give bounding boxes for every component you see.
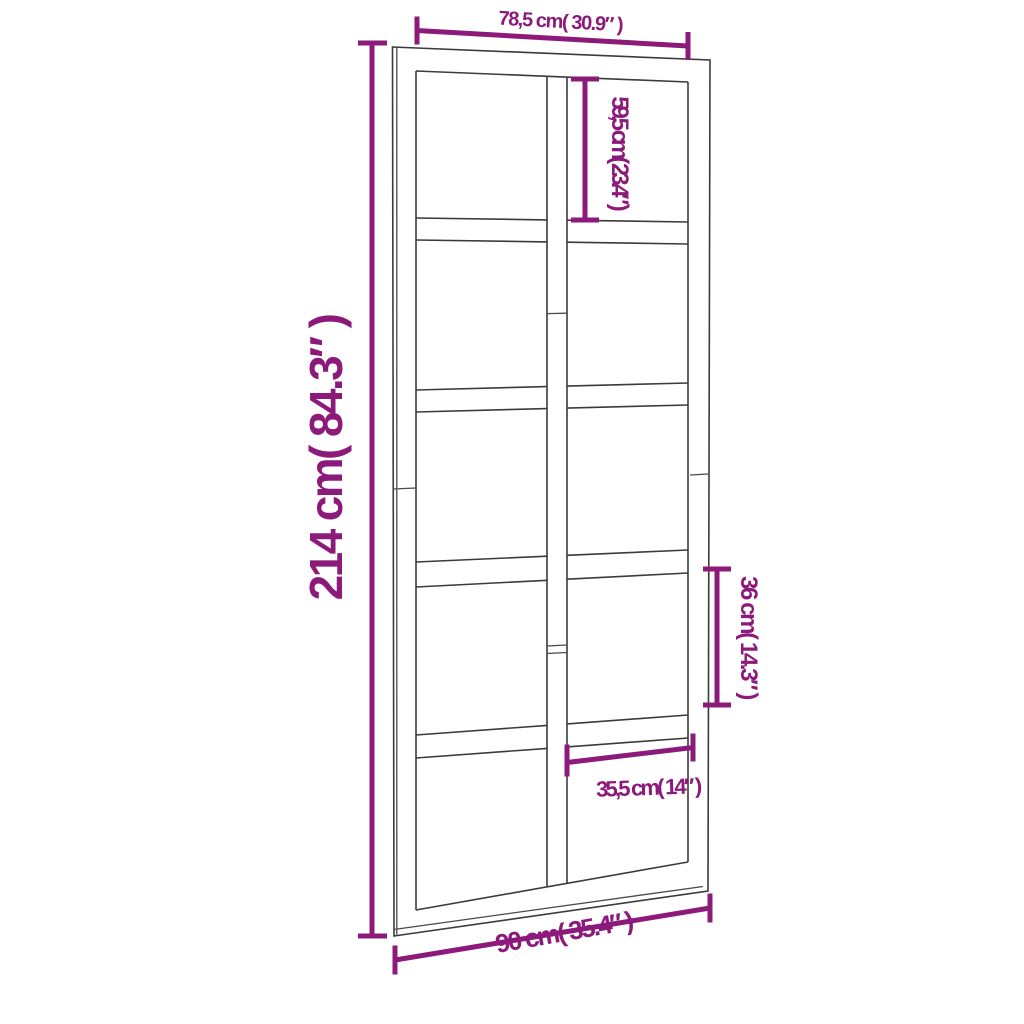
product-dimension-image: 78,5 cm( 30.9″ ) 59,5 cm( 23.4″ ) 214 cm…: [0, 0, 1024, 1024]
dimension-label-right-pane-height: 36 cm( 14.3″ ): [735, 576, 762, 699]
stile-joint-marks: [393, 313, 708, 653]
dimension-top-inner-width: 78,5 cm( 30.9″ ): [417, 8, 688, 60]
dimension-line-bottom-pane-width: [567, 734, 693, 777]
dimension-line-right-pane-height: [703, 569, 731, 705]
dimension-upper-pane-height: 59,5 cm( 23.4″ ): [571, 79, 633, 220]
dimension-label-upper-pane-height: 59,5 cm( 23.4″ ): [606, 96, 633, 211]
dimension-line-upper-pane-height: [571, 79, 599, 220]
window-grid-rails-left: [416, 218, 547, 758]
dimension-label-bottom-pane-width: 35,5 cm( 14″ ): [596, 773, 703, 802]
door-outline: [393, 47, 711, 936]
door-edge-thickness-lines: [394, 47, 703, 935]
center-stile: [547, 76, 567, 887]
window-grid-rails-right: [567, 220, 688, 747]
dimension-right-pane-height: 36 cm( 14.3″ ): [703, 569, 762, 705]
dimension-bottom-pane-width: 35,5 cm( 14″ ): [567, 734, 702, 802]
door-drawing: [393, 47, 711, 936]
dimension-overall-height: 214 cm( 84.3″ ): [300, 43, 387, 936]
dimension-line-overall-height: [358, 43, 387, 936]
dimension-label-top-inner-width: 78,5 cm( 30.9″ ): [498, 8, 624, 37]
door-dimension-diagram: 78,5 cm( 30.9″ ) 59,5 cm( 23.4″ ) 214 cm…: [0, 0, 1024, 1024]
dimension-label-overall-height: 214 cm( 84.3″ ): [300, 314, 352, 600]
